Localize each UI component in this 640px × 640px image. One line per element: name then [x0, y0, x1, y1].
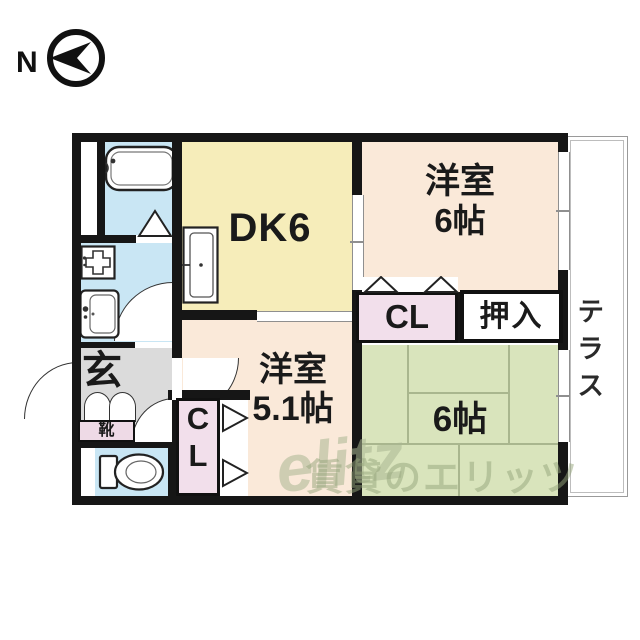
closet-door-triangle-icon — [363, 276, 399, 293]
floorplan-canvas: N N テラス — [0, 0, 640, 640]
sliding-door-dk-westmid — [257, 311, 352, 322]
bath-door-triangle-icon — [136, 208, 174, 238]
western-room-mid-label: 洋室 5.1帖 — [218, 352, 368, 430]
shoe-box-label: 靴 — [78, 421, 135, 441]
closet-bottom-letter-c: C — [176, 400, 220, 437]
bathtub-icon — [104, 145, 179, 192]
wall-top — [72, 133, 568, 142]
entrance-door-arc — [24, 362, 78, 419]
western-mid-door-gap — [172, 358, 182, 400]
toilet-icon — [98, 451, 166, 493]
tatami-line — [458, 445, 460, 496]
wall-genkan-toilet — [72, 442, 176, 448]
wall-left-column — [172, 142, 182, 358]
north-compass-icon: N — [14, 16, 114, 98]
dk-room-label: DK6 — [190, 203, 350, 253]
wall-right-seg3 — [558, 442, 568, 505]
western-room-top-size: 6帖 — [362, 202, 558, 240]
washing-machine-pan-icon — [80, 245, 116, 280]
oshiire-label: 押入 — [463, 293, 560, 340]
terrace-label: テラス — [568, 272, 608, 432]
north-letter: N — [16, 46, 38, 79]
closet-bottom-label: C L — [176, 400, 220, 474]
tatami-room-label: 6帖 — [362, 398, 558, 442]
wall-left — [72, 133, 81, 505]
tatami-line — [407, 392, 510, 394]
window-tick — [556, 210, 570, 212]
wall-toilet-right — [168, 448, 176, 496]
wall-bottom — [72, 496, 568, 505]
sliding-door-tick — [350, 241, 364, 243]
washroom-door-gap — [135, 342, 172, 348]
wall-dk-west-mid — [172, 310, 257, 320]
closet-door-triangle-icon — [423, 276, 459, 293]
western-room-mid-name: 洋室 — [218, 352, 368, 389]
wall-dk-west-upper — [352, 142, 362, 195]
entrance-step-scallop — [84, 392, 111, 422]
sink-icon — [79, 289, 120, 339]
western-room-top-name: 洋室 — [362, 163, 558, 202]
wall-pipe-space — [97, 142, 105, 242]
western-room-mid-size: 5.1帖 — [218, 389, 368, 430]
tatami-line — [362, 443, 558, 445]
western-room-top-label: 洋室 6帖 — [362, 163, 558, 239]
toilet-cubby-floor — [81, 448, 95, 496]
closet-door-triangle-icon — [221, 458, 249, 488]
wall-right-seg1 — [558, 133, 568, 152]
wall-bath-divider — [81, 235, 136, 243]
closet-top-label: CL — [358, 294, 456, 341]
genkan-label: 玄 — [78, 348, 126, 394]
closet-bottom-letter-l: L — [176, 437, 220, 474]
entrance-step-scallop — [109, 392, 136, 422]
